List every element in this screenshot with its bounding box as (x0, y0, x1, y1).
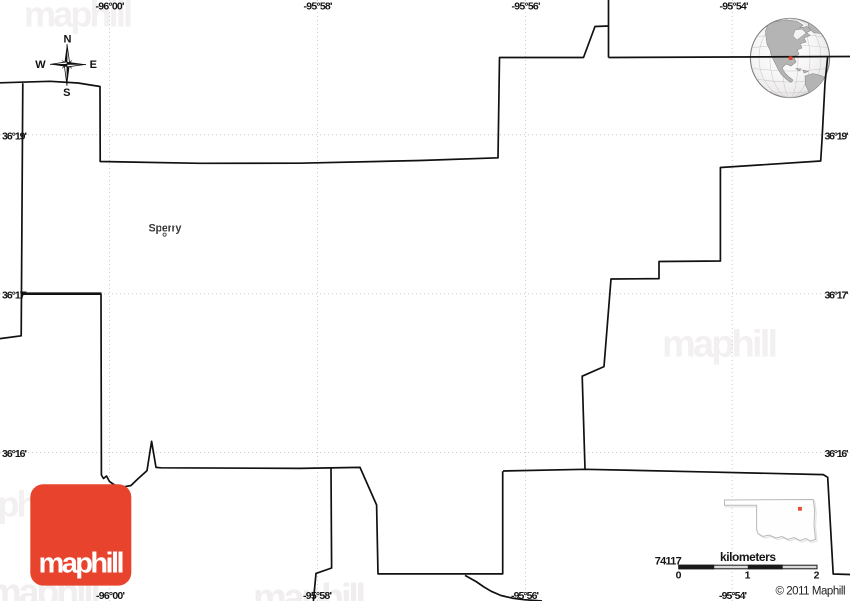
svg-text:-95°54': -95°54' (720, 1, 749, 13)
svg-text:0: 0 (676, 570, 682, 582)
svg-text:S: S (63, 87, 70, 99)
svg-text:-95°58': -95°58' (303, 590, 332, 601)
svg-text:kilometers: kilometers (720, 550, 776, 564)
svg-text:2: 2 (814, 570, 820, 582)
svg-text:1: 1 (745, 570, 751, 582)
svg-text:36°16': 36°16' (825, 448, 849, 460)
svg-text:36°19': 36°19' (2, 131, 27, 143)
svg-text:N: N (64, 34, 72, 46)
svg-text:-96°00': -96°00' (96, 590, 125, 601)
svg-text:-96°00': -96°00' (96, 1, 125, 13)
svg-text:E: E (90, 59, 97, 71)
svg-text:-95°54': -95°54' (719, 590, 747, 601)
svg-text:-95°56': -95°56' (511, 590, 539, 601)
svg-text:-95°56': -95°56' (512, 1, 541, 13)
svg-text:36°17': 36°17' (825, 290, 849, 302)
svg-text:W: W (35, 59, 46, 71)
svg-text:maphill: maphill (662, 324, 778, 366)
svg-text:74117: 74117 (655, 555, 682, 567)
svg-text:Sperry: Sperry (149, 223, 183, 235)
svg-text:36°19': 36°19' (825, 130, 849, 142)
svg-text:maphill: maphill (39, 548, 125, 580)
svg-text:36°16': 36°16' (2, 448, 27, 460)
svg-text:-95°58': -95°58' (304, 1, 333, 13)
svg-text:36°17': 36°17' (2, 290, 27, 302)
svg-text:© 2011 Maphill: © 2011 Maphill (776, 586, 846, 598)
